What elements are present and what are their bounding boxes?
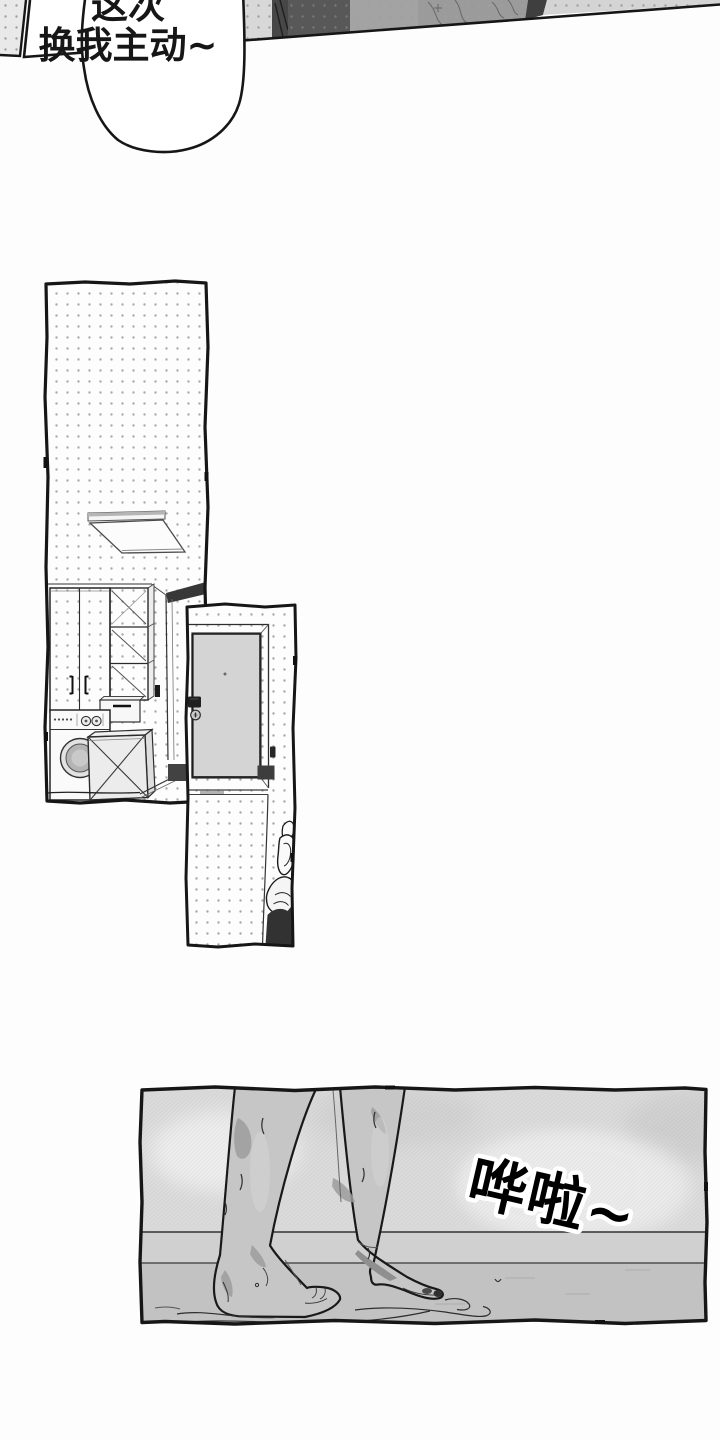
door-peephole bbox=[224, 673, 227, 676]
toes bbox=[422, 1288, 432, 1294]
door-leaf bbox=[193, 634, 261, 777]
panel-wet-feet: 哗啦~ bbox=[135, 1082, 712, 1330]
speech-bubble-text: 这次 换我主动~ bbox=[38, 0, 218, 65]
door-handle bbox=[188, 697, 201, 708]
panel-entry-door bbox=[180, 598, 303, 954]
front-door bbox=[186, 625, 269, 789]
speech-bubble-line-2: 换我主动~ bbox=[38, 26, 218, 66]
speech-bubble-line-1: 这次 bbox=[38, 0, 218, 26]
door-stop bbox=[258, 766, 275, 780]
laundry-basket bbox=[88, 730, 155, 801]
comic-page: 这次 换我主动~ bbox=[0, 0, 720, 1440]
light-switch bbox=[155, 685, 160, 697]
